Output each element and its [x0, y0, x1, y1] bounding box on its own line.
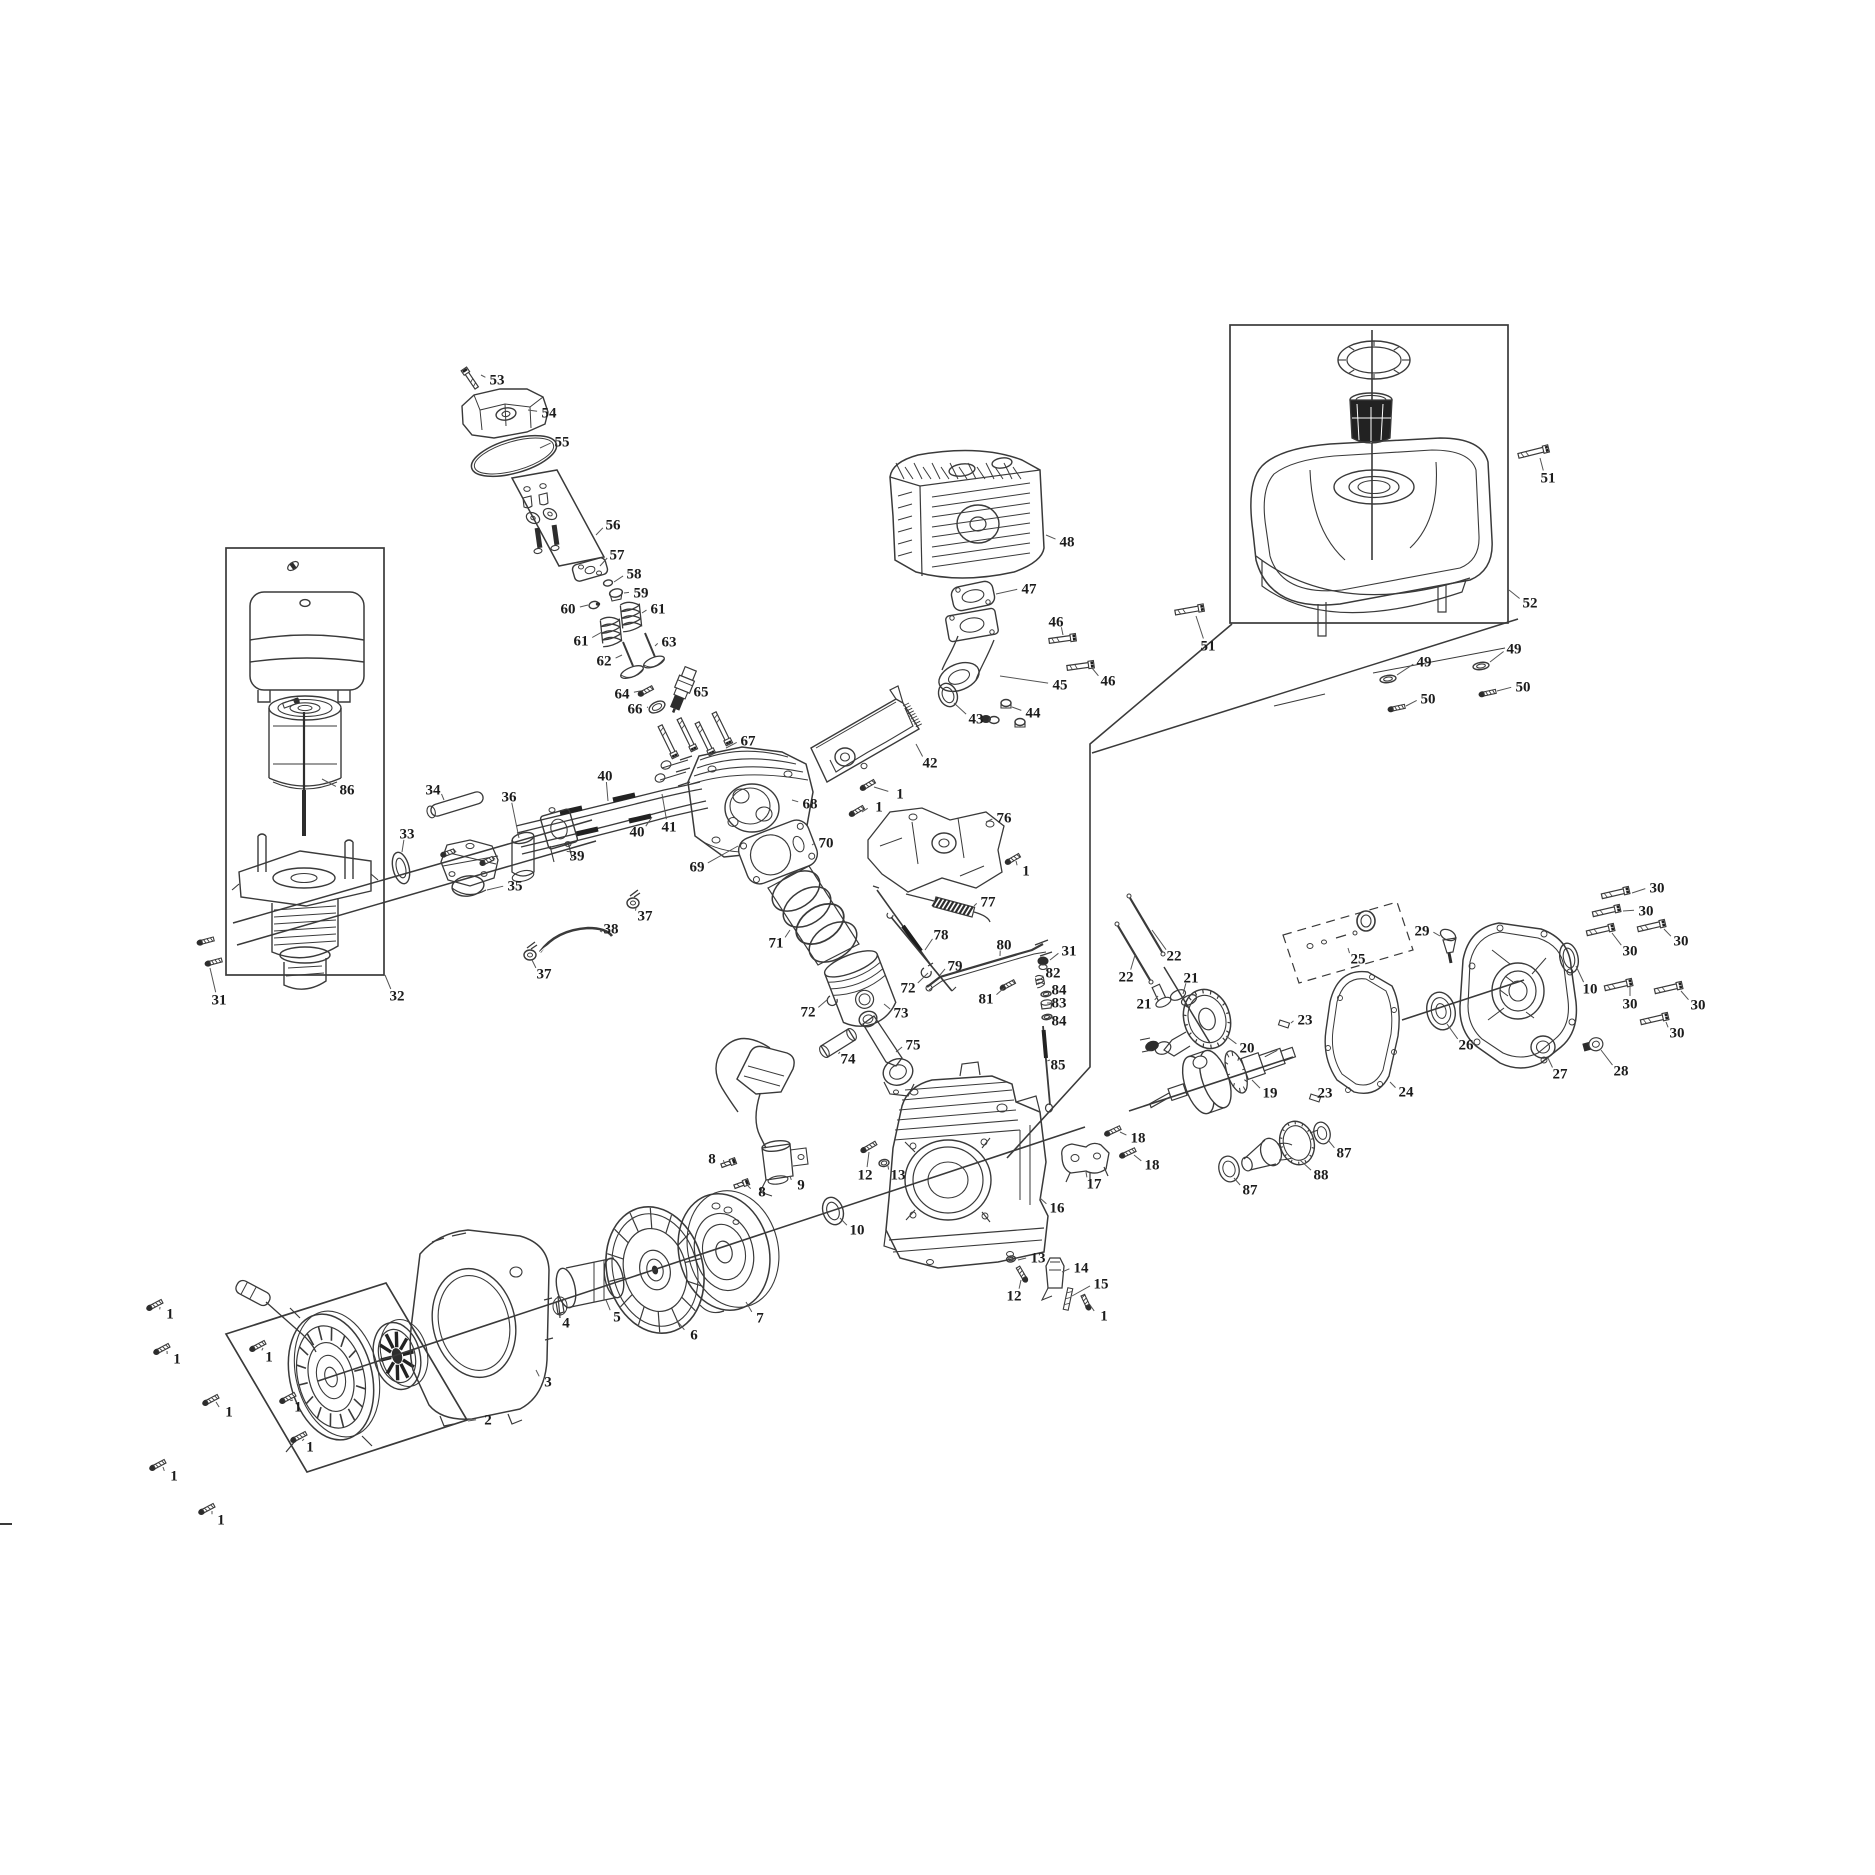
svg-text:62: 62: [597, 654, 612, 670]
svg-text:67: 67: [741, 734, 757, 750]
svg-text:1: 1: [170, 1469, 178, 1485]
svg-text:40: 40: [630, 825, 645, 841]
svg-text:30: 30: [1650, 881, 1665, 897]
svg-text:64: 64: [615, 687, 631, 703]
svg-text:30: 30: [1674, 934, 1689, 950]
svg-text:22: 22: [1167, 949, 1182, 965]
svg-text:15: 15: [1094, 1277, 1109, 1293]
svg-text:76: 76: [997, 811, 1013, 827]
svg-text:82: 82: [1046, 966, 1061, 982]
svg-text:74: 74: [841, 1052, 857, 1068]
svg-text:24: 24: [1399, 1085, 1415, 1101]
svg-text:37: 37: [638, 909, 654, 925]
svg-text:1: 1: [1100, 1309, 1108, 1325]
svg-text:8: 8: [708, 1152, 716, 1168]
svg-text:51: 51: [1201, 639, 1216, 655]
svg-text:50: 50: [1516, 680, 1531, 696]
svg-text:32: 32: [390, 989, 405, 1005]
svg-text:1: 1: [166, 1307, 174, 1323]
svg-text:57: 57: [610, 548, 626, 564]
svg-text:17: 17: [1087, 1177, 1103, 1193]
svg-text:25: 25: [1351, 952, 1366, 968]
svg-text:84: 84: [1052, 1014, 1068, 1030]
svg-text:81: 81: [979, 992, 994, 1008]
svg-text:12: 12: [858, 1168, 873, 1184]
svg-text:49: 49: [1507, 642, 1522, 658]
svg-text:1: 1: [896, 787, 904, 803]
svg-text:2: 2: [484, 1413, 492, 1429]
svg-text:30: 30: [1623, 944, 1638, 960]
svg-text:30: 30: [1670, 1026, 1685, 1042]
svg-text:1: 1: [173, 1352, 181, 1368]
svg-text:46: 46: [1049, 615, 1065, 631]
svg-text:77: 77: [981, 895, 997, 911]
svg-text:50: 50: [1421, 692, 1436, 708]
svg-text:29: 29: [1415, 924, 1430, 940]
svg-text:51: 51: [1541, 471, 1556, 487]
svg-text:35: 35: [508, 879, 523, 895]
svg-text:22: 22: [1119, 970, 1134, 986]
svg-text:69: 69: [690, 860, 705, 876]
svg-text:16: 16: [1050, 1201, 1066, 1217]
svg-text:87: 87: [1243, 1183, 1259, 1199]
svg-text:45: 45: [1053, 678, 1068, 694]
svg-text:73: 73: [894, 1006, 909, 1022]
svg-text:44: 44: [1026, 706, 1042, 722]
svg-text:14: 14: [1074, 1261, 1090, 1277]
svg-text:38: 38: [604, 922, 619, 938]
svg-text:4: 4: [562, 1316, 570, 1332]
svg-text:42: 42: [923, 756, 938, 772]
svg-text:87: 87: [1337, 1146, 1353, 1162]
svg-text:23: 23: [1298, 1013, 1313, 1029]
svg-text:56: 56: [606, 518, 622, 534]
svg-text:1: 1: [294, 1400, 302, 1416]
svg-text:58: 58: [627, 567, 642, 583]
svg-text:85: 85: [1051, 1058, 1066, 1074]
svg-text:10: 10: [1583, 982, 1598, 998]
svg-text:47: 47: [1022, 582, 1038, 598]
svg-text:46: 46: [1101, 674, 1117, 690]
svg-text:18: 18: [1145, 1158, 1160, 1174]
svg-text:8: 8: [758, 1185, 766, 1201]
svg-text:49: 49: [1417, 655, 1432, 671]
svg-text:59: 59: [634, 586, 649, 602]
svg-text:88: 88: [1314, 1168, 1329, 1184]
svg-text:31: 31: [212, 993, 227, 1009]
svg-text:23: 23: [1318, 1086, 1333, 1102]
svg-text:75: 75: [906, 1038, 921, 1054]
svg-text:72: 72: [901, 981, 916, 997]
svg-text:30: 30: [1623, 997, 1638, 1013]
svg-text:21: 21: [1137, 997, 1152, 1013]
svg-text:28: 28: [1614, 1064, 1629, 1080]
svg-text:71: 71: [769, 936, 784, 952]
svg-text:13: 13: [1031, 1251, 1046, 1267]
svg-text:19: 19: [1263, 1086, 1278, 1102]
svg-text:7: 7: [756, 1311, 764, 1327]
svg-text:61: 61: [574, 634, 589, 650]
svg-text:53: 53: [490, 373, 505, 389]
svg-text:39: 39: [570, 849, 585, 865]
svg-text:65: 65: [694, 685, 709, 701]
svg-text:55: 55: [555, 435, 570, 451]
svg-text:41: 41: [662, 820, 677, 836]
svg-text:9: 9: [797, 1178, 805, 1194]
svg-text:37: 37: [537, 967, 553, 983]
svg-text:26: 26: [1459, 1038, 1475, 1054]
svg-text:21: 21: [1184, 971, 1199, 987]
svg-text:78: 78: [934, 928, 949, 944]
svg-text:43: 43: [969, 712, 984, 728]
svg-text:1: 1: [225, 1405, 233, 1421]
svg-text:34: 34: [426, 783, 442, 799]
svg-text:13: 13: [891, 1168, 906, 1184]
svg-text:33: 33: [400, 827, 415, 843]
svg-text:63: 63: [662, 635, 677, 651]
svg-text:48: 48: [1060, 535, 1075, 551]
svg-text:20: 20: [1240, 1041, 1255, 1057]
svg-text:12: 12: [1007, 1289, 1022, 1305]
svg-text:79: 79: [948, 959, 963, 975]
svg-text:30: 30: [1691, 998, 1706, 1014]
svg-text:66: 66: [628, 702, 644, 718]
svg-text:31: 31: [1062, 944, 1077, 960]
svg-text:6: 6: [690, 1328, 698, 1344]
svg-text:80: 80: [997, 938, 1012, 954]
svg-text:52: 52: [1523, 596, 1538, 612]
svg-text:30: 30: [1639, 904, 1654, 920]
svg-text:1: 1: [217, 1513, 225, 1529]
svg-text:68: 68: [803, 797, 818, 813]
svg-text:1: 1: [875, 800, 883, 816]
svg-text:1: 1: [1022, 864, 1030, 880]
svg-text:36: 36: [502, 790, 518, 806]
svg-text:40: 40: [598, 769, 613, 785]
svg-text:83: 83: [1052, 996, 1067, 1012]
svg-text:10: 10: [850, 1223, 865, 1239]
svg-text:1: 1: [265, 1350, 273, 1366]
svg-text:5: 5: [613, 1310, 621, 1326]
svg-text:54: 54: [542, 406, 558, 422]
svg-text:70: 70: [819, 836, 834, 852]
svg-text:18: 18: [1131, 1131, 1146, 1147]
svg-text:1: 1: [306, 1440, 314, 1456]
svg-text:3: 3: [544, 1375, 552, 1391]
svg-text:61: 61: [651, 602, 666, 618]
svg-text:27: 27: [1553, 1067, 1569, 1083]
svg-text:60: 60: [561, 602, 576, 618]
svg-text:86: 86: [340, 783, 356, 799]
svg-text:72: 72: [801, 1005, 816, 1021]
